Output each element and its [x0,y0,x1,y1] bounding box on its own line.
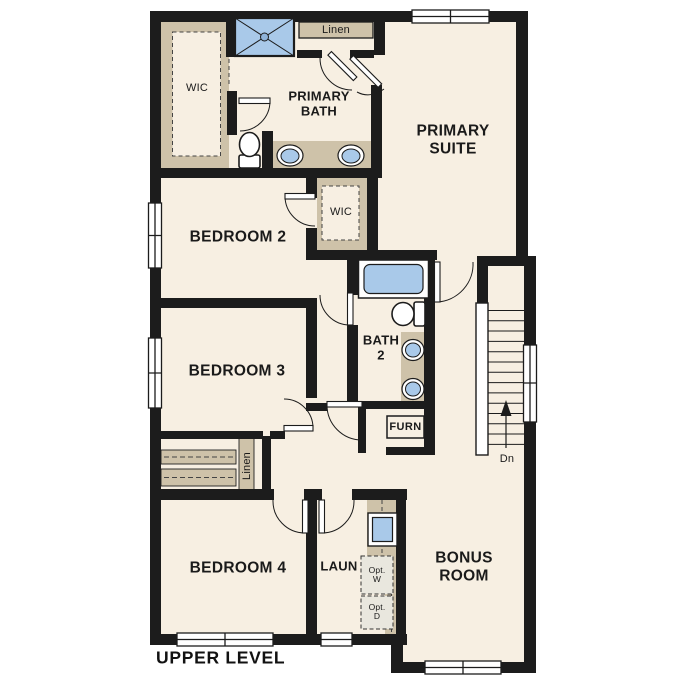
stair-handrail [476,303,488,455]
window-primary-suite-top [412,10,489,23]
wic-bedroom2-label: WIC [330,206,352,218]
shower-fixture [235,18,294,56]
bedroom3-label: BEDROOM 3 [189,362,286,380]
sink-bath2-upper [402,340,424,361]
primary-bath-label: PRIMARY BATH [288,89,349,118]
door-leaf-hall [327,402,362,408]
opt-washer-label: Opt. W [369,566,386,584]
window-bonus-bottom [425,661,501,674]
window-stairs-right [524,345,537,422]
bedroom4-label: BEDROOM 4 [190,559,287,577]
primary-suite-label: PRIMARY SUITE [416,123,489,158]
bonus-room-label: BONUS ROOM [435,550,493,585]
toilet-primary-fixture [239,133,260,169]
door-leaf-wic-bedroom2 [285,194,315,200]
floor-plan-page: WIC Linen PRIMARY BATH PRIMARY SUITE BED… [0,0,687,687]
door-leaf-water-closet [239,98,270,104]
window-bedroom3-left [149,338,162,408]
linen-hall-label: Linen [240,452,252,480]
door-leaf-primary-suite [435,262,441,302]
window-laundry-bottom [321,633,352,646]
bathtub-fixture [359,260,429,298]
door-leaf-laundry [319,500,325,533]
bath2-label: BATH 2 [363,333,399,362]
door-leaf-bedroom4 [303,500,309,533]
stair-direction-label: Dn [500,453,515,465]
sink-primary-left [277,145,303,166]
laundry-sink-fixture [368,513,397,546]
laundry-label: LAUN [320,560,357,575]
window-bedroom2-left [149,203,162,268]
sink-bath2-lower [402,379,424,400]
linen-top-label: Linen [322,24,350,36]
door-leaf-bedroom3 [284,426,313,432]
furnace-label: FURN [389,421,421,433]
window-bedroom4-bottom [177,633,273,646]
page-title: UPPER LEVEL [156,648,285,669]
bedroom2-label: BEDROOM 2 [190,228,287,246]
wic-primary-label: WIC [186,82,208,94]
door-leaf-bath2 [348,293,354,325]
toilet-bath2-fixture [392,302,425,326]
sink-primary-right [338,145,364,166]
opt-dryer-label: Opt. D [369,603,386,621]
